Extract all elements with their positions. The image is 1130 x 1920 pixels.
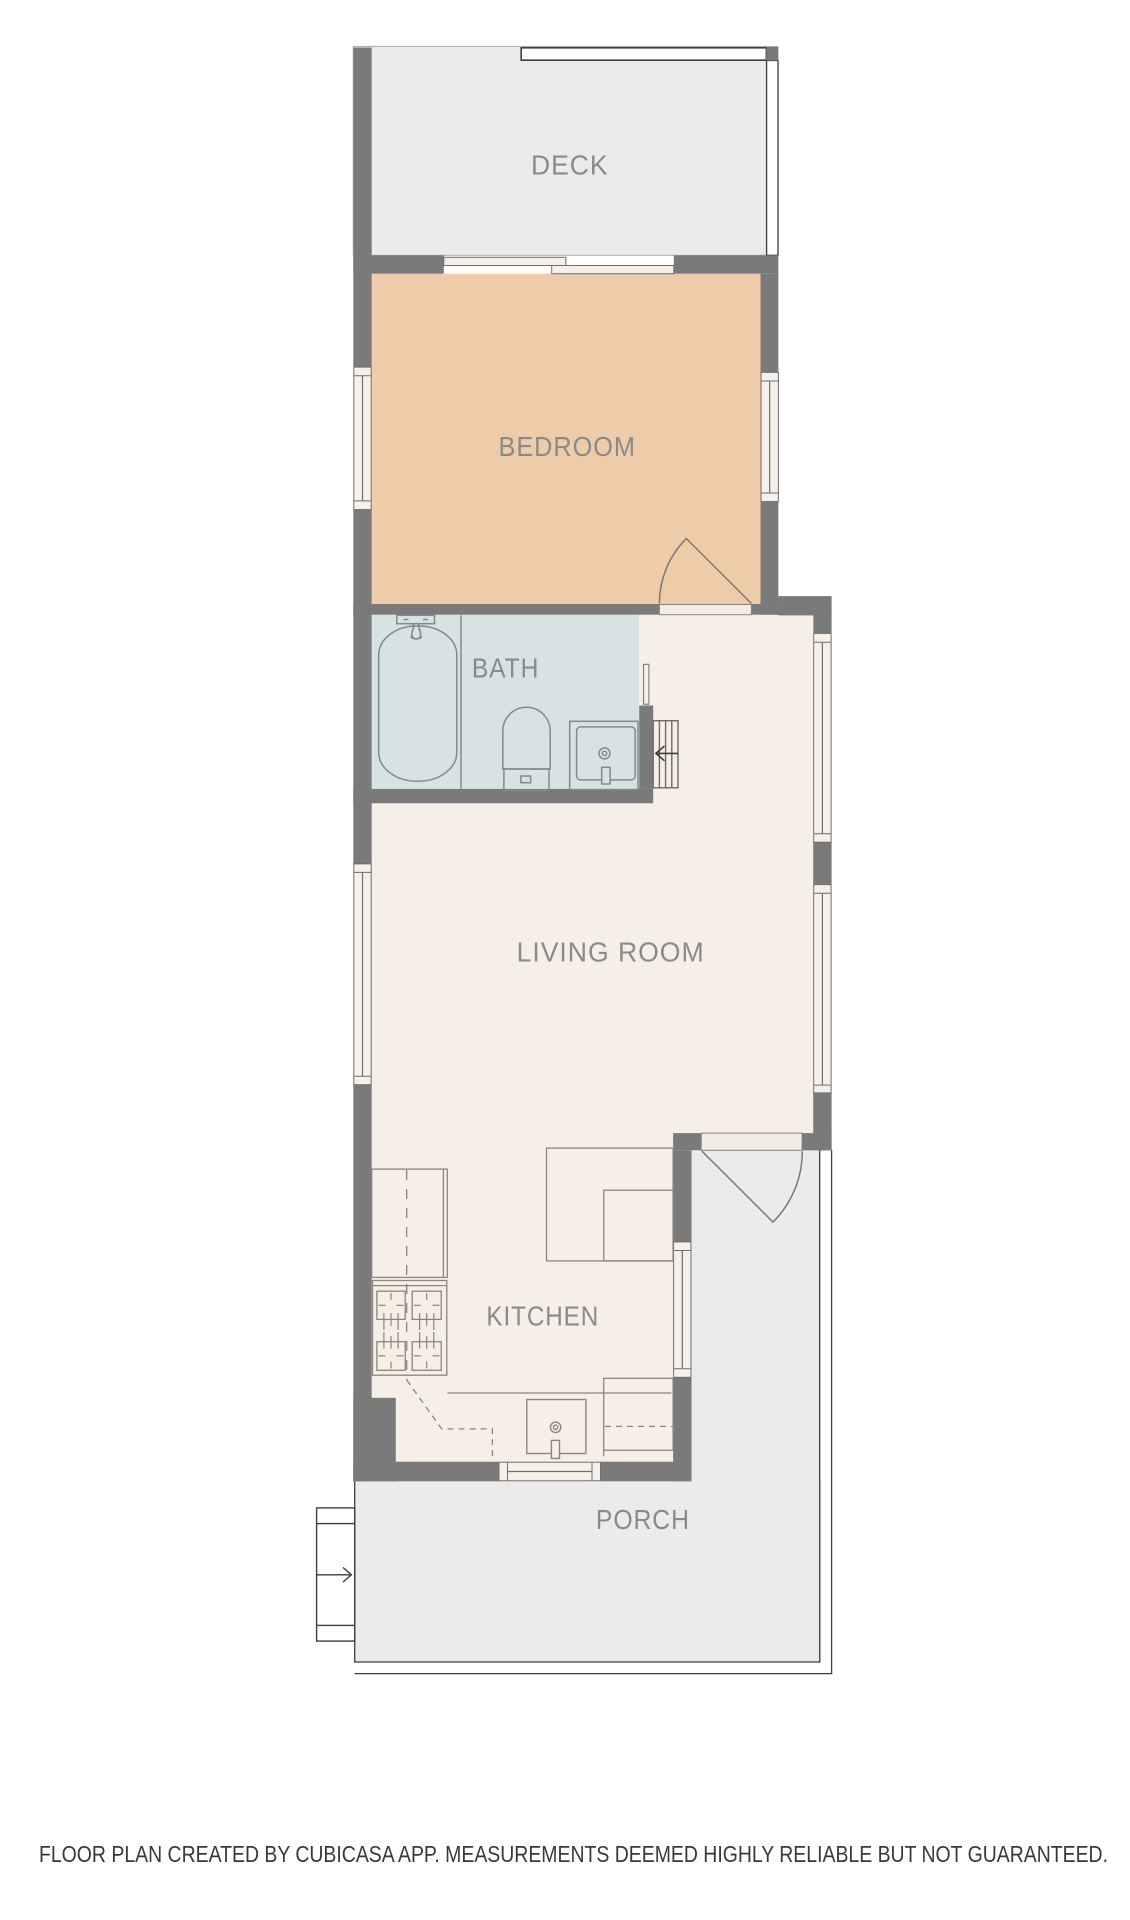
svg-text:KITCHEN: KITCHEN: [486, 1301, 599, 1332]
svg-text:FLOOR PLAN CREATED BY CUBICASA: FLOOR PLAN CREATED BY CUBICASA APP. MEAS…: [39, 1841, 1108, 1867]
svg-text:LIVING ROOM: LIVING ROOM: [517, 937, 705, 968]
svg-text:BATH: BATH: [472, 652, 540, 683]
svg-text:DECK: DECK: [531, 149, 609, 180]
svg-text:PORCH: PORCH: [596, 1504, 690, 1535]
svg-text:BEDROOM: BEDROOM: [499, 431, 636, 462]
